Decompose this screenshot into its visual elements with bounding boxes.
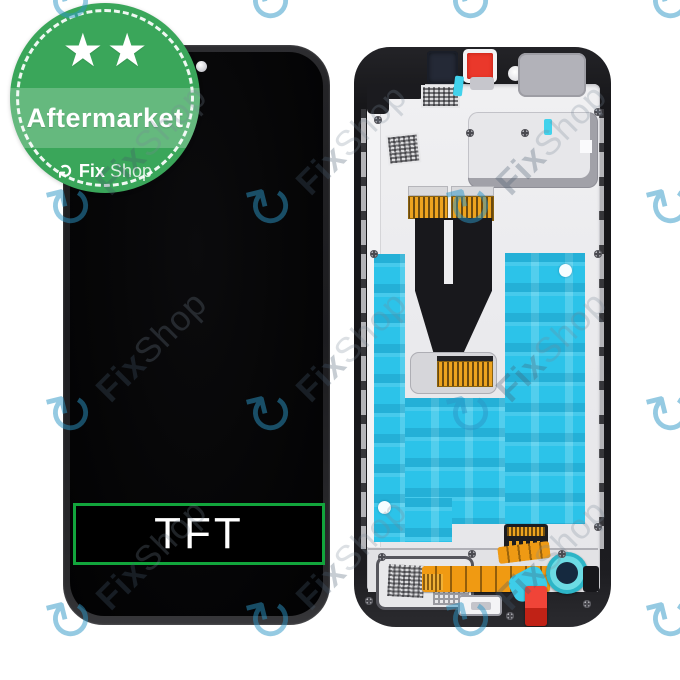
adhesive-tab — [544, 119, 552, 135]
adhesive-cyan-right — [505, 253, 585, 524]
watermark-refresh-icon: ↻ — [639, 380, 680, 448]
watermark-refresh-icon: ↻ — [639, 586, 680, 654]
tft-label: TFT — [154, 509, 244, 559]
screw — [594, 523, 602, 531]
screw — [466, 129, 474, 137]
adhesive-cyan-left — [374, 254, 405, 542]
top-right-shield — [518, 53, 586, 97]
star-icon: ★ — [107, 27, 148, 73]
flex-connector-cap — [408, 186, 448, 196]
refresh-icon: ↻ — [55, 163, 77, 179]
red-foam-sticker — [467, 53, 493, 79]
white-sticker-tab — [580, 140, 592, 153]
motor-core — [556, 562, 578, 584]
vibration-motor — [546, 552, 588, 594]
flex-connector — [437, 361, 493, 387]
lcd-back-panel — [354, 47, 611, 627]
screw — [521, 129, 529, 137]
flex-cable-slot — [444, 220, 453, 284]
screw — [558, 550, 566, 558]
usb-port — [458, 595, 502, 616]
flex-connector — [451, 196, 494, 221]
aftermarket-badge: ★ ★ Aftermarket ↻FixShop — [10, 3, 200, 193]
star-icon: ★ — [62, 27, 103, 73]
alignment-dot — [378, 501, 391, 514]
badge-band: Aftermarket — [10, 88, 200, 148]
screw — [594, 108, 602, 116]
watermark-refresh-icon: ↻ — [439, 0, 500, 36]
screw — [378, 553, 386, 561]
logo-text-light: Shop — [110, 161, 152, 182]
flex-connector-cap — [451, 186, 494, 196]
flex-gold-pad — [423, 574, 443, 590]
product-photo: TFT — [0, 0, 680, 680]
red-pull-tab — [525, 586, 547, 626]
connector-pins — [507, 527, 545, 536]
sensor-tab — [470, 77, 494, 90]
screw — [583, 600, 591, 608]
qr-sticker — [387, 564, 425, 598]
alignment-dot — [559, 264, 572, 277]
side-bracket — [583, 566, 599, 592]
tft-label-box: TFT — [73, 503, 325, 565]
fixshop-logo: ↻FixShop — [10, 160, 200, 182]
qr-sticker — [388, 135, 420, 164]
screw — [374, 116, 382, 124]
frame-corner-step — [367, 84, 389, 114]
screw — [370, 250, 378, 258]
usb-slot — [471, 602, 491, 610]
watermark-refresh-icon: ↻ — [639, 0, 680, 36]
logo-text-bold: Fix — [79, 161, 105, 182]
watermark-refresh-icon: ↻ — [239, 0, 300, 36]
recessed-shield-area — [468, 112, 598, 188]
screw — [468, 550, 476, 558]
badge-label: Aftermarket — [26, 103, 183, 134]
flex-connector — [408, 196, 448, 219]
screw — [594, 250, 602, 258]
watermark-refresh-icon: ↻ — [639, 173, 680, 241]
left-antenna-rail — [361, 109, 366, 549]
badge-stars: ★ ★ — [10, 27, 200, 73]
right-antenna-rail — [599, 109, 604, 549]
camera-cutout — [427, 51, 458, 84]
screw — [365, 597, 373, 605]
adhesive-cyan-middle-low — [405, 498, 452, 542]
screw — [506, 612, 514, 620]
